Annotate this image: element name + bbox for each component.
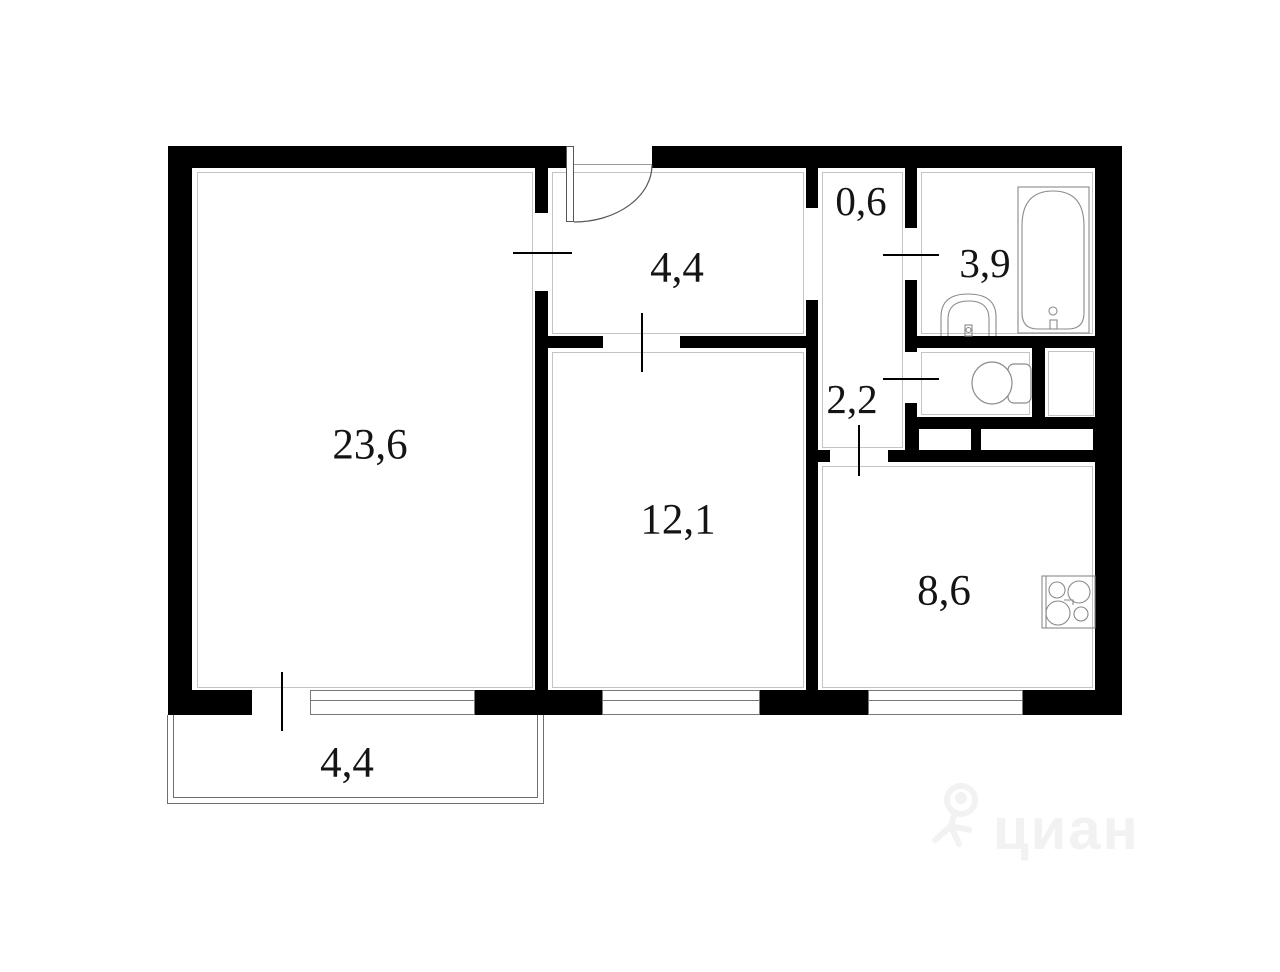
bathtub-icon: [1018, 187, 1089, 333]
wall-kitchen-top-left: [806, 450, 830, 462]
wall-hallway-bottom-left: [548, 336, 603, 348]
label-closet: 0,6: [835, 177, 886, 225]
stove-icon: [1042, 576, 1095, 628]
label-corridor: 2,2: [826, 375, 877, 423]
wall-top-left: [168, 146, 566, 168]
wall-kitchen-top-right: [888, 450, 905, 462]
wall-living-hall-upper: [535, 168, 548, 213]
balcony-line: [173, 715, 174, 798]
shaft-outline: [1048, 351, 1094, 416]
balcony-line: [543, 715, 544, 804]
watermark: циан: [925, 778, 1140, 863]
label-kitchen: 8,6: [917, 567, 971, 616]
balcony-door-mark: [281, 672, 283, 731]
label-hallway: 4,4: [650, 244, 704, 293]
wall-living-hall-lower: [535, 291, 548, 690]
wall-bedroom-corridor: [806, 300, 818, 690]
watermark-logo-icon: [925, 778, 987, 863]
wall-left: [168, 146, 192, 715]
balcony-line: [173, 797, 538, 798]
watermark-text: циан: [993, 796, 1140, 863]
label-bedroom: 12,1: [640, 496, 715, 545]
wall-right: [1095, 146, 1122, 715]
duct-box-right: [981, 429, 1093, 450]
label-living-room: 23,6: [332, 421, 407, 470]
wall-corridor-stub: [806, 168, 818, 208]
bedroom-window: [602, 690, 760, 715]
sink-icon: [941, 294, 996, 336]
living-room-door-mark: [513, 252, 572, 254]
toilet-icon: [972, 362, 1031, 404]
kitchen-door-mark: [858, 425, 860, 476]
label-balcony: 4,4: [320, 739, 374, 788]
living-room-window: [310, 690, 475, 715]
balcony-line: [167, 803, 544, 804]
label-bathroom: 3,9: [959, 239, 1010, 287]
wall-hallway-bottom-right: [680, 336, 818, 348]
balcony-line: [537, 715, 538, 798]
wall-bathroom-left-upper: [905, 168, 917, 228]
entrance-door-leaf: [566, 146, 574, 222]
wall-wc-right: [1032, 348, 1045, 417]
wall-bathroom-left-mid: [905, 280, 917, 352]
wall-bathroom-bottom: [917, 336, 1095, 348]
duct-box-left: [919, 429, 971, 450]
kitchen-window: [868, 690, 1023, 715]
wc-door-mark: [883, 378, 939, 380]
entrance-door-arc: [574, 165, 652, 222]
balcony-line: [167, 715, 168, 804]
entrance-threshold: [566, 164, 652, 165]
floor-plan: 23,6 4,4 0,6 3,9 2,2 12,1 8,6 4,4 циан: [0, 0, 1280, 972]
bedroom-door-mark: [641, 313, 643, 372]
wall-top-right: [652, 146, 1122, 168]
bathroom-door-mark: [883, 254, 939, 256]
wc-outline: [921, 352, 1030, 415]
